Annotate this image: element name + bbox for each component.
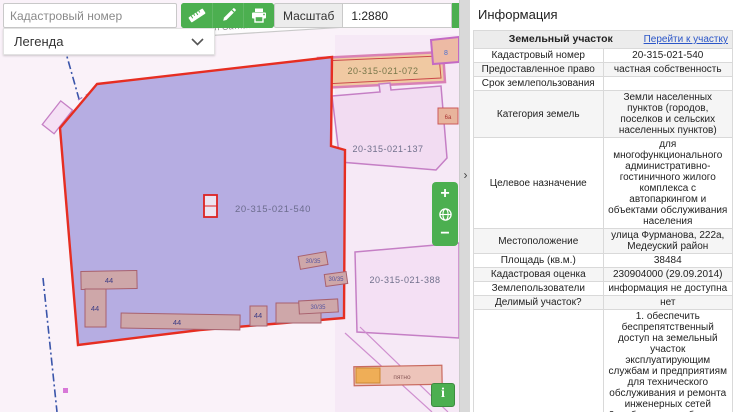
building-6a-label: 6а	[445, 115, 452, 121]
building-label-44: 44	[91, 304, 99, 313]
parcel-072-label: 20-315-021-072	[347, 66, 418, 76]
legend-dropdown[interactable]: Легенда	[3, 28, 215, 55]
parcel-8-label: 8	[444, 50, 448, 57]
row-label: Целевое назначение	[474, 138, 604, 229]
chevron-down-icon	[191, 34, 204, 49]
cadastral-map-app: 20-315-021-072 8 6а 20-315-021-137 20-31…	[0, 0, 740, 412]
panel-divider: ›	[459, 0, 470, 412]
row-label: Площадь (кв.м.)	[474, 254, 604, 268]
map-pane: 20-315-021-072 8 6а 20-315-021-137 20-31…	[0, 0, 459, 412]
scale-label: Масштаб	[274, 3, 343, 28]
globe-icon	[438, 207, 453, 222]
zoom-in-button[interactable]: +	[432, 184, 458, 204]
scale-control: Масштаб 1:2880 ▾	[274, 3, 459, 28]
row-value: 230904000 (29.09.2014)	[603, 268, 733, 282]
row-value: 20-315-021-540	[603, 49, 733, 63]
table-row: Местоположение улица Фурманова, 222а, Ме…	[474, 229, 733, 254]
row-value: 1. обеспечить беспрепятственный доступ н…	[603, 310, 733, 412]
go-to-parcel-link[interactable]: Перейти к участку	[644, 34, 728, 45]
row-value: Земли населенных пунктов (городов, посел…	[603, 91, 733, 138]
selected-parcel-label: 20-315-021-540	[235, 204, 311, 215]
row-value: частная собственность	[603, 63, 733, 77]
printer-icon	[251, 8, 267, 23]
table-row: Площадь (кв.м.) 38484	[474, 254, 733, 268]
table-row: Землепользователи информация не доступна	[474, 282, 733, 296]
building-label-44: 44	[254, 311, 262, 320]
table-header-row: Земельный участок Перейти к участку	[474, 31, 733, 49]
parcel-info-table: Земельный участок Перейти к участку Када…	[473, 30, 733, 412]
table-row: Целевое назначение для многофункциональн…	[474, 138, 733, 229]
map-dot	[63, 388, 68, 393]
table-row: Категория земель Земли населенных пункто…	[474, 91, 733, 138]
row-label: Землепользователи	[474, 282, 604, 296]
print-button[interactable]	[243, 3, 274, 28]
legend-label: Легенда	[14, 34, 63, 49]
table-header-title: Земельный участок	[478, 34, 644, 45]
search-input[interactable]	[3, 3, 177, 28]
row-value: 38484	[603, 254, 733, 268]
boundary-dashed-line	[43, 278, 57, 412]
row-value: информация не доступна	[603, 282, 733, 296]
row-label: Делимый участок?	[474, 296, 604, 310]
row-value: нет	[603, 296, 733, 310]
map-tools-group	[181, 3, 274, 28]
row-label: Ограничения	[474, 310, 604, 412]
row-label: Кадастровый номер	[474, 49, 604, 63]
building-spot-orange	[356, 368, 380, 383]
building-spot-label: пятно	[393, 374, 411, 381]
row-value: для многофункционального административно…	[603, 138, 733, 229]
measure-button[interactable]	[181, 3, 212, 28]
panel-title: Информация	[470, 0, 740, 30]
ruler-icon	[187, 8, 207, 23]
map-zoom-controls: + −	[432, 182, 458, 246]
table-row: Кадастровый номер 20-315-021-540	[474, 49, 733, 63]
info-panel: Информация Земельный участок Перейти к у…	[470, 0, 740, 412]
map-toolbar	[3, 3, 274, 28]
table-row: Делимый участок? нет	[474, 296, 733, 310]
parcel-137[interactable]	[332, 83, 447, 170]
row-value	[603, 77, 733, 91]
row-label: Предоставленное право	[474, 63, 604, 77]
building-label-3035: 30/35	[310, 305, 326, 311]
table-row: Кадастровая оценка 230904000 (29.09.2014…	[474, 268, 733, 282]
building-label-44: 44	[173, 318, 181, 327]
parcel-137-label: 20-315-021-137	[352, 144, 423, 154]
building-label-3035: 30/35	[305, 259, 321, 265]
map-canvas[interactable]: 20-315-021-072 8 6а 20-315-021-137 20-31…	[0, 0, 459, 412]
row-label: Срок землепользования	[474, 77, 604, 91]
locate-button[interactable]	[432, 204, 458, 224]
table-row: Ограничения 1. обеспечить беспрепятствен…	[474, 310, 733, 412]
pencil-icon	[221, 8, 236, 23]
panel-collapse-handle[interactable]: ›	[461, 168, 470, 182]
scale-dropdown-button[interactable]: ▾	[452, 3, 459, 28]
row-value: улица Фурманова, 222а, Медеуский район	[603, 229, 733, 254]
table-row: Предоставленное право частная собственно…	[474, 63, 733, 77]
row-label: Кадастровая оценка	[474, 268, 604, 282]
parcel-388[interactable]	[355, 243, 459, 338]
row-label: Категория земель	[474, 91, 604, 138]
parcel-388-label: 20-315-021-388	[369, 275, 440, 285]
building-label-44: 44	[105, 276, 113, 285]
zoom-out-button[interactable]: −	[432, 224, 458, 244]
scale-value[interactable]: 1:2880	[343, 3, 452, 28]
building-label-3035: 30/35	[328, 277, 344, 283]
table-row: Срок землепользования	[474, 77, 733, 91]
row-label: Местоположение	[474, 229, 604, 254]
map-info-button[interactable]: i	[431, 383, 455, 407]
draw-button[interactable]	[212, 3, 243, 28]
